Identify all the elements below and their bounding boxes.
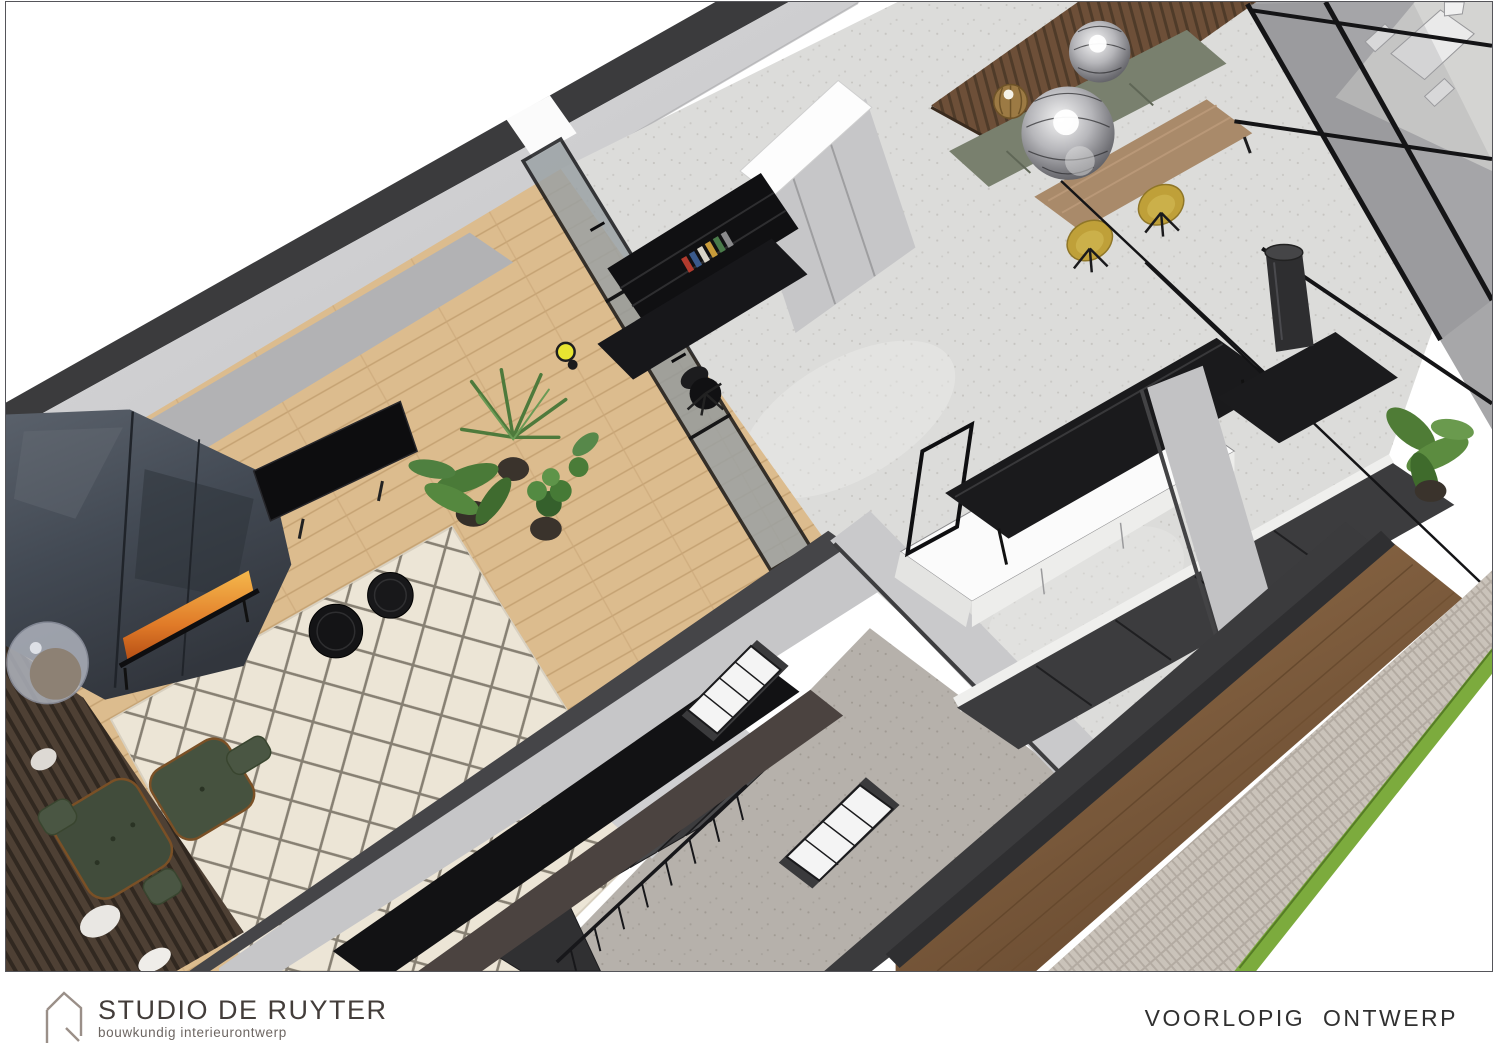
- brand-tagline: bouwkundig interieurontwerp: [98, 1026, 388, 1040]
- studio-logo: STUDIO DE RUYTER bouwkundig interieuront…: [42, 988, 388, 1048]
- wire-mesh-pendant-small: [1069, 21, 1130, 83]
- design-status-label: VOORLOPIG ONTWERP: [1145, 1005, 1458, 1032]
- brand-name: STUDIO DE RUYTER: [98, 996, 388, 1024]
- house-logo-icon: [42, 988, 86, 1048]
- render-viewport: [5, 1, 1493, 972]
- rattan-pendant: [994, 84, 1028, 118]
- wire-mesh-pendant-large: [1021, 86, 1114, 179]
- presentation-page: STUDIO DE RUYTER bouwkundig interieuront…: [0, 0, 1500, 1061]
- yellow-wall-lamp: [557, 343, 575, 361]
- footer: STUDIO DE RUYTER bouwkundig interieuront…: [0, 975, 1500, 1061]
- floorplan-3d-render: [6, 2, 1492, 971]
- globe-floor-lamp: [7, 622, 88, 703]
